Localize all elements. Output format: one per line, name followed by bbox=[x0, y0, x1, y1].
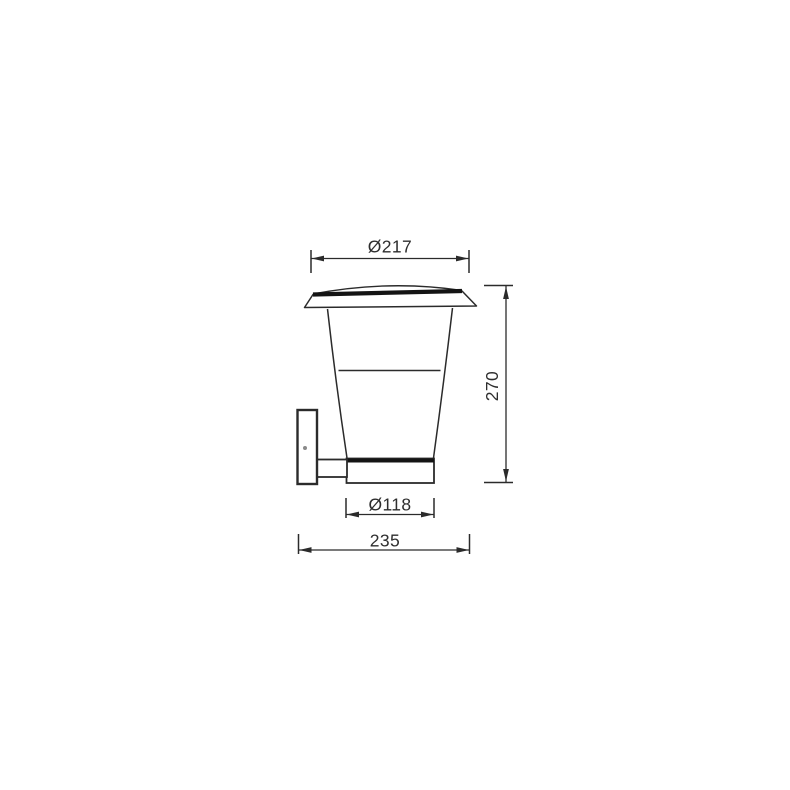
technical-drawing-page: Ø217 270 Ø118 235 bbox=[0, 0, 790, 790]
arrowhead-up bbox=[503, 287, 509, 300]
wall-mount-plate bbox=[298, 410, 318, 484]
arrowhead-right bbox=[457, 547, 470, 553]
dimension-top-diameter: Ø217 bbox=[311, 237, 469, 274]
lantern-fixture bbox=[298, 286, 477, 484]
bracket-arm bbox=[317, 460, 347, 478]
mounting-screw bbox=[303, 446, 307, 450]
dimension-label-base-diameter: Ø118 bbox=[368, 495, 411, 515]
dimension-label-height: 270 bbox=[482, 371, 502, 401]
lantern-cone-left-edge bbox=[328, 309, 348, 458]
dimension-height: 270 bbox=[482, 286, 513, 483]
arrowhead-left bbox=[347, 512, 360, 518]
dimension-depth: 235 bbox=[299, 531, 470, 555]
dimension-label-depth: 235 bbox=[370, 531, 400, 551]
lantern-cone-right-edge bbox=[434, 308, 453, 458]
arrowhead-left bbox=[299, 547, 312, 553]
wall-lantern-dimension-drawing: Ø217 270 Ø118 235 bbox=[0, 0, 790, 790]
dimension-label-top-diameter: Ø217 bbox=[368, 237, 412, 257]
arrowhead-right bbox=[456, 256, 469, 262]
arrowhead-down bbox=[503, 469, 509, 482]
arrowhead-right bbox=[421, 512, 434, 518]
arrowhead-left bbox=[312, 256, 325, 262]
dimension-base-diameter: Ø118 bbox=[346, 495, 434, 519]
